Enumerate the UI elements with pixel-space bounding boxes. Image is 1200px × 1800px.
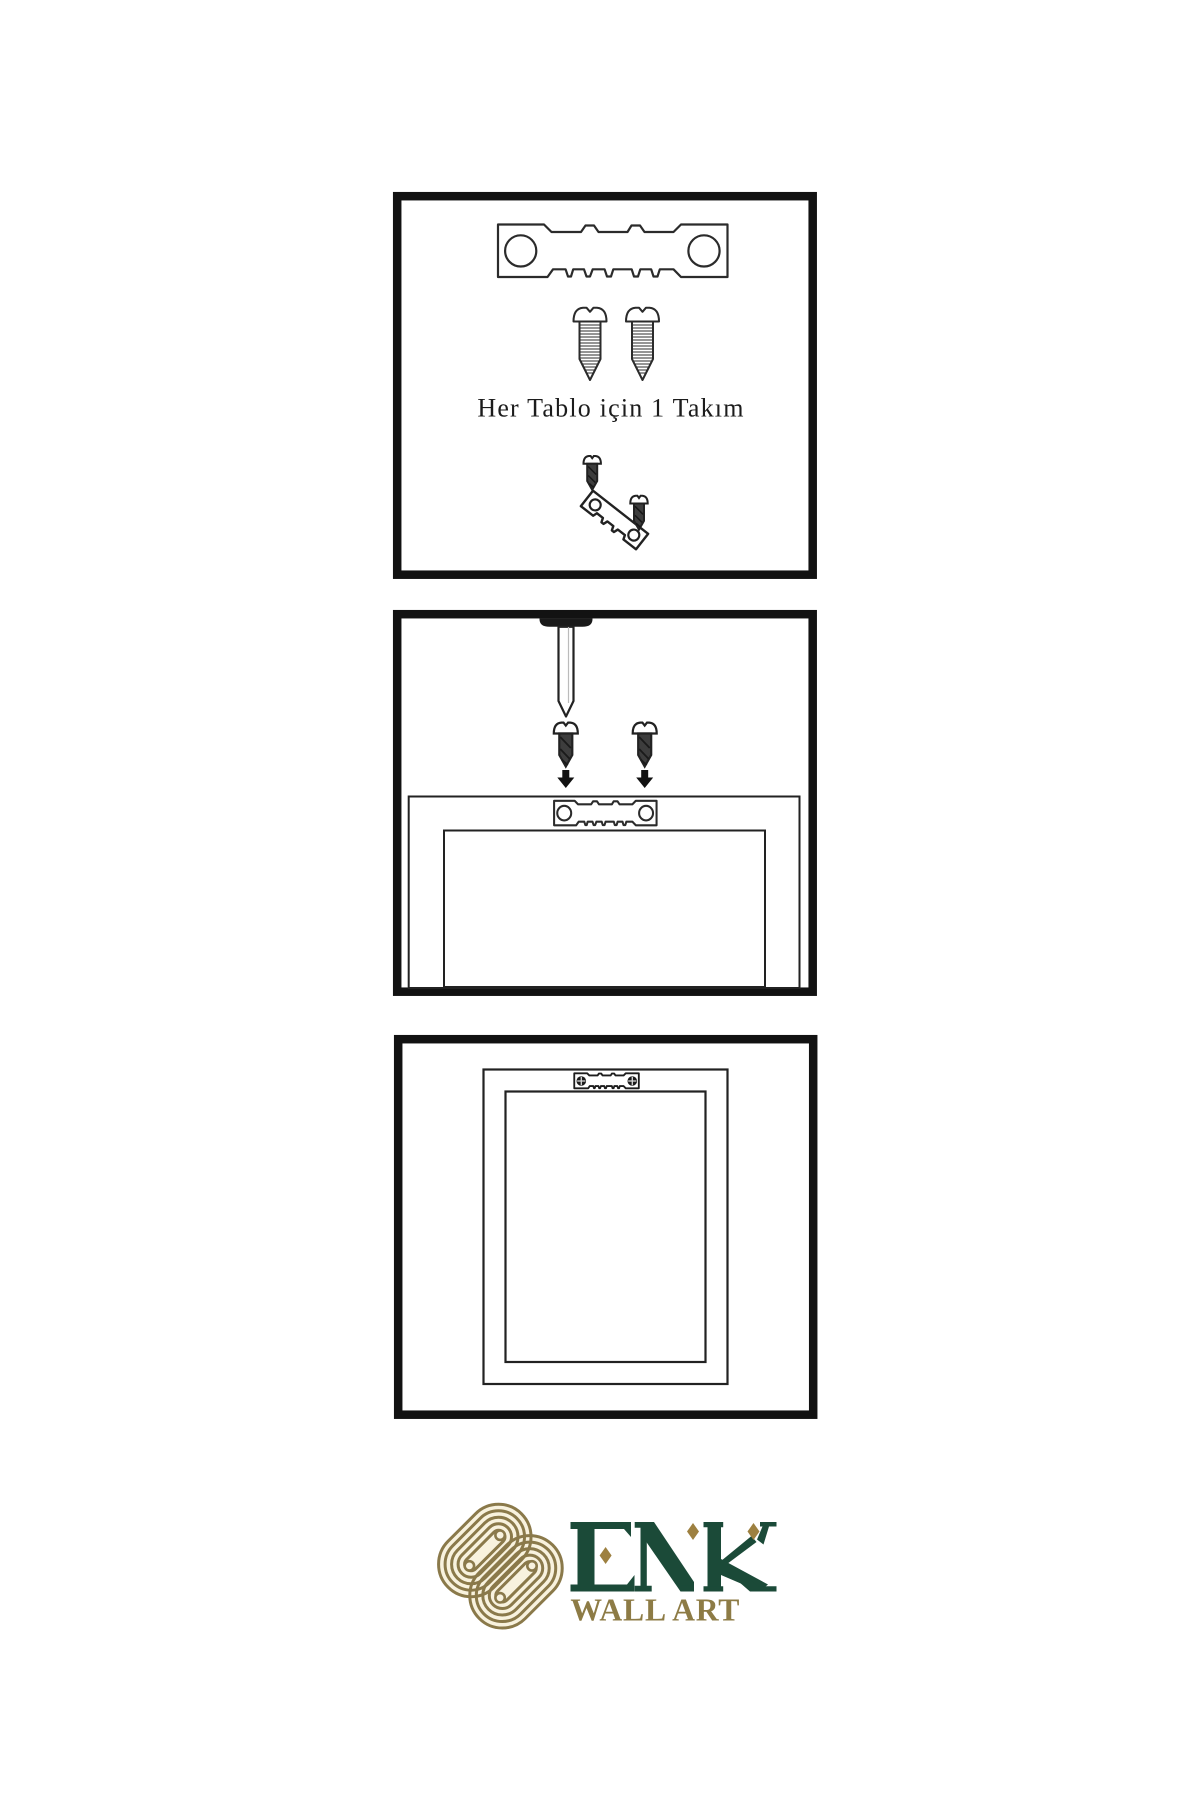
svg-text:WALL ART: WALL ART (570, 1592, 740, 1627)
svg-text:Her Tablo için 1 Takım: Her Tablo için 1 Takım (477, 394, 744, 423)
